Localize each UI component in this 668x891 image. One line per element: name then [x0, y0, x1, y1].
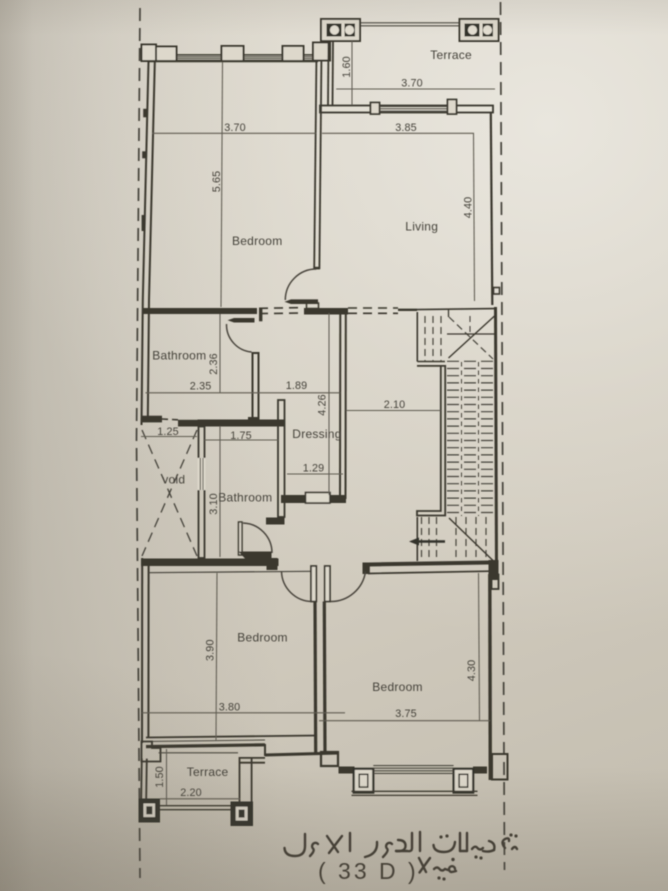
svg-text:Bathroom: Bathroom	[152, 348, 206, 362]
svg-text:1.89: 1.89	[286, 380, 308, 392]
svg-text:1.29: 1.29	[303, 462, 325, 474]
svg-text:1.60: 1.60	[341, 56, 353, 78]
svg-text:Living: Living	[405, 219, 438, 233]
svg-text:Bedroom: Bedroom	[372, 680, 422, 694]
svg-text:1.25: 1.25	[157, 426, 179, 438]
svg-text:2.36: 2.36	[208, 353, 220, 375]
svg-text:1.75: 1.75	[230, 430, 252, 442]
svg-text:Bathroom: Bathroom	[218, 490, 272, 504]
svg-text:3.85: 3.85	[395, 122, 417, 134]
svg-text:void: void	[162, 472, 185, 486]
svg-text:Terrace: Terrace	[187, 765, 229, 779]
svg-text:Bedroom: Bedroom	[232, 234, 282, 248]
svg-text:3.90: 3.90	[204, 639, 216, 661]
svg-text:Bedroom: Bedroom	[237, 630, 287, 644]
svg-text:Dressing: Dressing	[292, 427, 341, 441]
svg-text:Terrace: Terrace	[430, 48, 472, 62]
svg-text:3.70: 3.70	[401, 78, 423, 90]
svg-text:4.40: 4.40	[462, 197, 474, 219]
svg-text:2.10: 2.10	[384, 399, 406, 411]
svg-text:3.70: 3.70	[224, 122, 246, 134]
svg-text:3.75: 3.75	[395, 708, 417, 720]
svg-text:1.50: 1.50	[154, 766, 166, 788]
svg-text:4.30: 4.30	[466, 660, 478, 682]
svg-text:3.80: 3.80	[219, 701, 241, 713]
svg-text:3.10: 3.10	[208, 493, 220, 515]
svg-text:2.20: 2.20	[180, 787, 202, 799]
svg-text:4.26: 4.26	[316, 394, 328, 416]
svg-text:2.35: 2.35	[190, 380, 212, 392]
svg-text:( 33 D ): ( 33 D )	[318, 858, 419, 884]
svg-text:5.65: 5.65	[211, 171, 223, 193]
